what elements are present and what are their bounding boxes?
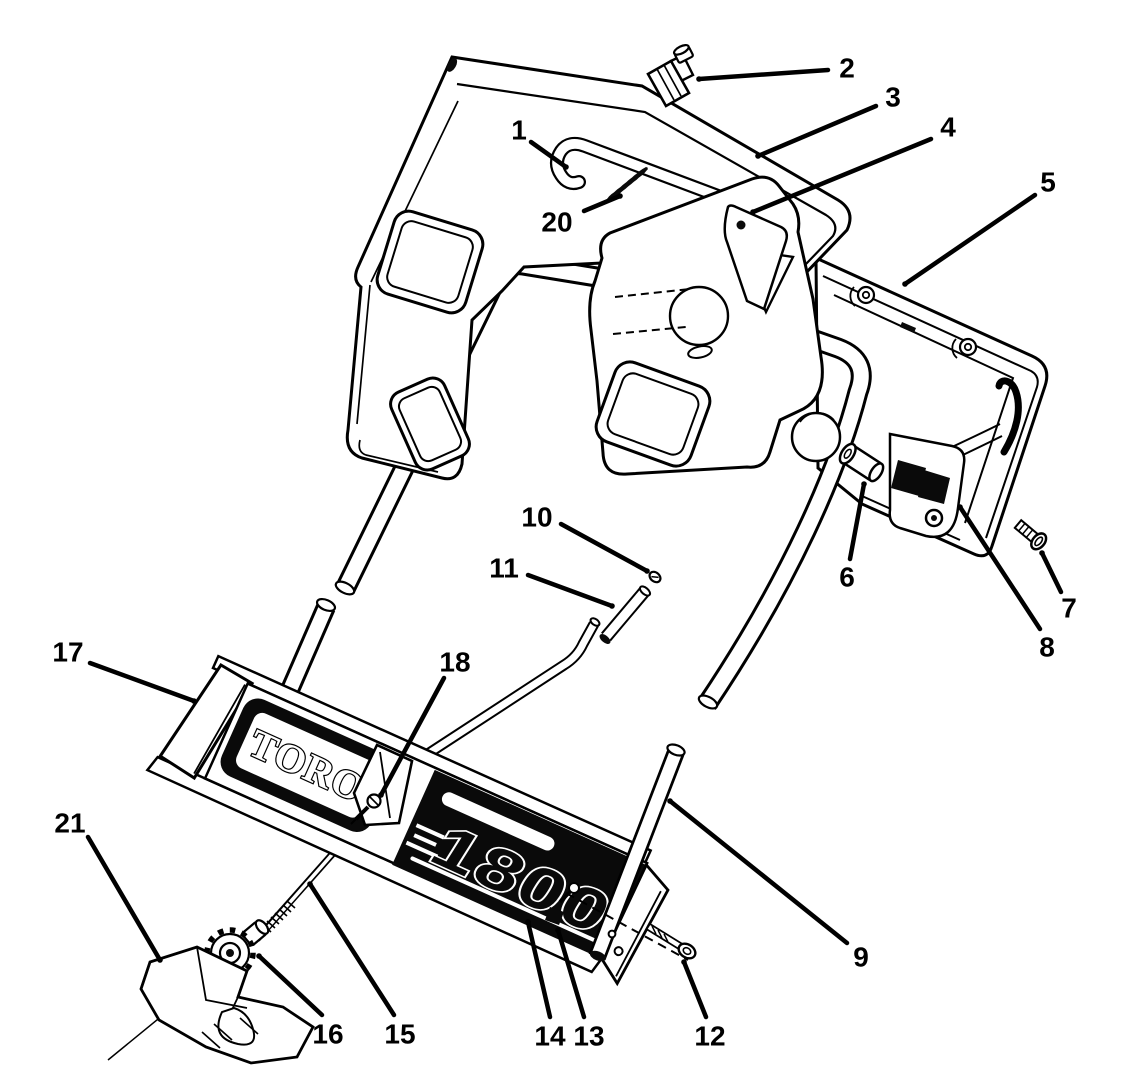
- leader-line-12: [684, 962, 706, 1017]
- leader-tip-21: [157, 957, 163, 963]
- leader-tip-3: [755, 153, 761, 159]
- leader-tip-12: [681, 959, 687, 965]
- leader-tip-15: [307, 881, 313, 887]
- shift-rod: [257, 850, 336, 939]
- carriage-bolt: [649, 926, 698, 961]
- leader-tip-7: [1039, 550, 1045, 556]
- leader-tip-10: [644, 568, 650, 574]
- callout-label-18: 18: [439, 647, 470, 678]
- leader-tip-2: [696, 76, 702, 82]
- lower-left-handle-tube: [286, 597, 337, 699]
- callout-label-7: 7: [1061, 593, 1077, 624]
- leader-tip-16: [256, 953, 262, 959]
- exploded-diagram-canvas: TORO 1800: [0, 0, 1128, 1065]
- leader-tip-9: [667, 798, 673, 804]
- leader-tip-17: [191, 698, 197, 704]
- leader-tip-6: [861, 481, 867, 487]
- parts-diagram-page: TORO 1800: [0, 0, 1128, 1065]
- callout-label-16: 16: [312, 1019, 343, 1050]
- mount-bracket: [108, 947, 313, 1063]
- callout-label-11: 11: [489, 553, 519, 584]
- leader-tip-4: [750, 209, 756, 215]
- leader-tip-5: [902, 281, 908, 287]
- screw: [1012, 517, 1049, 552]
- callout-label-4: 4: [940, 112, 956, 143]
- callout-label-1: 1: [511, 115, 527, 146]
- leader-tip-1: [563, 164, 569, 170]
- leader-line-15: [310, 884, 394, 1015]
- housing-dome: [792, 413, 840, 461]
- leader-tip-13: [555, 927, 561, 933]
- leader-tip-14: [525, 919, 531, 925]
- leader-tip-8: [957, 504, 963, 510]
- callout-label-3: 3: [885, 82, 901, 113]
- leader-line-2: [699, 70, 828, 79]
- small-nut: [648, 570, 663, 585]
- callout-label-14: 14: [534, 1021, 566, 1052]
- callout-label-15: 15: [384, 1019, 415, 1050]
- callout-label-12: 12: [694, 1021, 725, 1052]
- callout-label-8: 8: [1039, 632, 1055, 663]
- leader-tip-18: [378, 792, 384, 798]
- callout-label-13: 13: [573, 1021, 604, 1052]
- leader-line-5: [905, 195, 1035, 284]
- leader-line-17: [90, 663, 194, 701]
- shift-link-rod: [420, 617, 601, 759]
- callout-label-10: 10: [521, 502, 552, 533]
- callout-label-20: 20: [541, 207, 572, 238]
- leader-line-7: [1042, 553, 1061, 592]
- callout-label-6: 6: [839, 562, 855, 593]
- callout-label-2: 2: [839, 53, 855, 84]
- leader-tip-11: [609, 603, 615, 609]
- callout-label-21: 21: [54, 808, 85, 839]
- callout-label-17: 17: [52, 637, 83, 668]
- leader-tip-20: [617, 193, 623, 199]
- callout-label-5: 5: [1040, 167, 1056, 198]
- leader-line-11: [528, 575, 612, 606]
- leader-line-3: [758, 106, 876, 156]
- leader-line-9: [670, 801, 847, 943]
- leader-line-10: [561, 524, 647, 571]
- callout-label-9: 9: [853, 942, 869, 973]
- spacer-tube: [598, 585, 652, 646]
- leader-line-21: [88, 837, 160, 960]
